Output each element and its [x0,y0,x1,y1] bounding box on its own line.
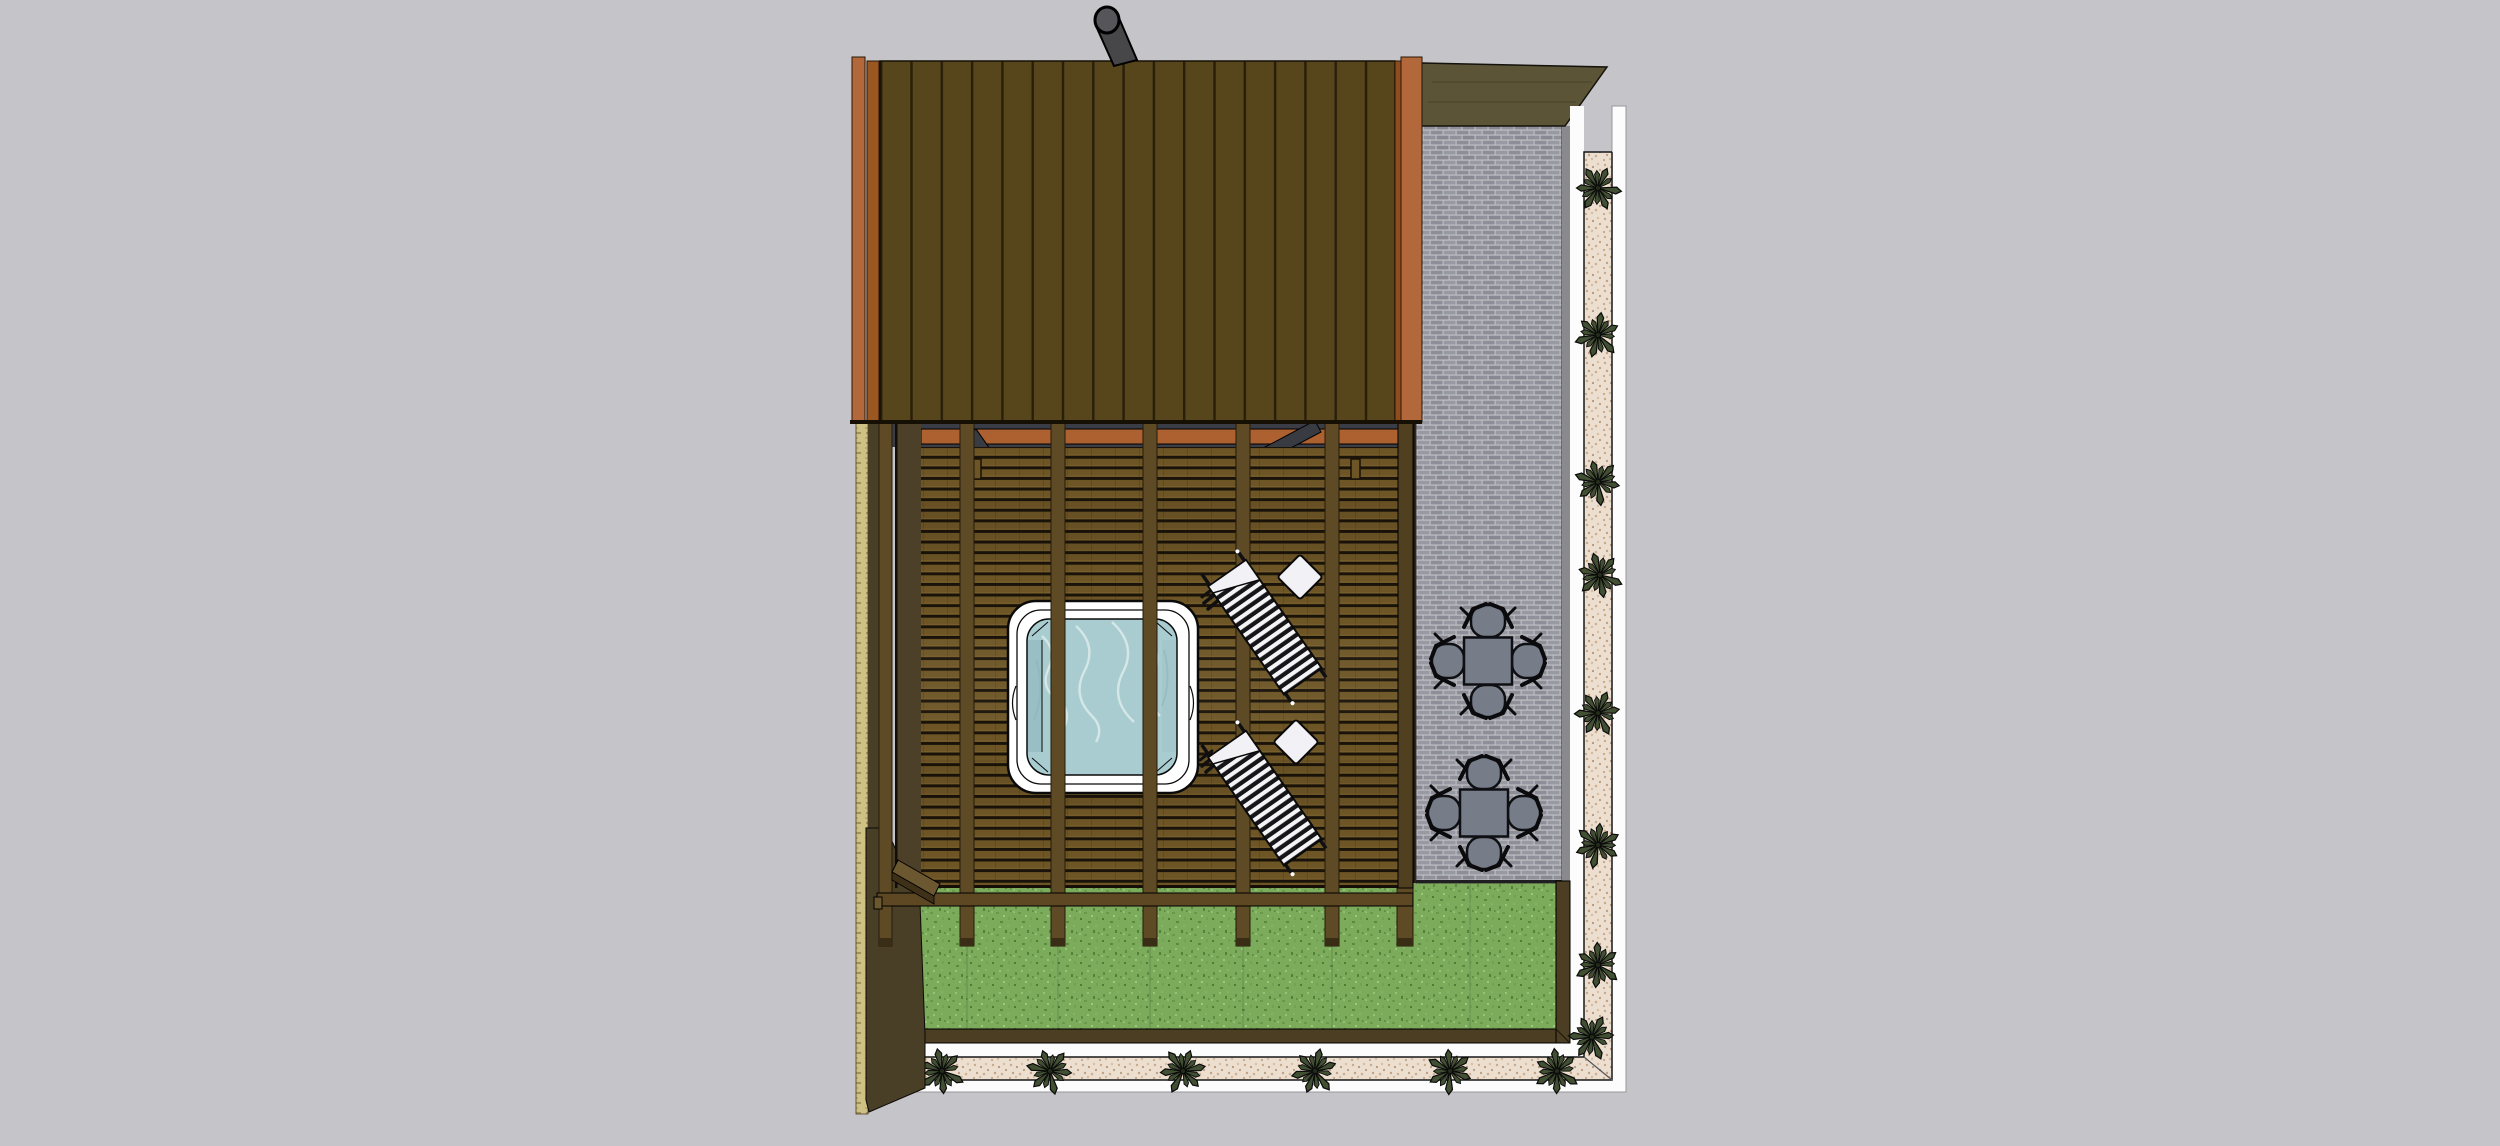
bench-rail[interactable] [877,893,1413,906]
roof-trim-right-outer [1401,57,1422,422]
inner-white-path-bottom [905,1043,1612,1057]
render-viewport[interactable] [0,0,2500,1146]
roof-trim-left-inner [867,61,879,422]
timber-edge-right [1556,881,1570,1043]
cabin-roof[interactable] [850,57,1422,424]
inner-white-path-right [1570,106,1584,1057]
timber-edge-bottom [918,1029,1568,1043]
deck-left-band [897,422,921,888]
roof-planks [880,61,1395,422]
pergola-deck[interactable] [874,421,1413,946]
roof-eave-line [850,420,1422,424]
hot-tub[interactable] [1008,601,1198,793]
roof-trim-left-outer [852,57,865,422]
roof-trim-right-inner [1395,61,1401,422]
deck-rim [1398,422,1413,888]
deck-fixture-2 [1351,459,1360,479]
patio-curb [1562,126,1570,883]
